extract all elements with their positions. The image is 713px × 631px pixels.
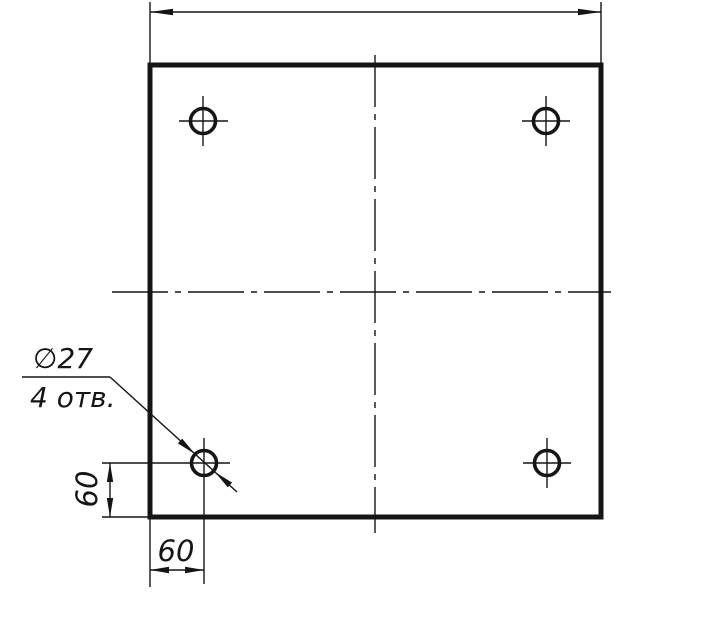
hole-bottom-right xyxy=(523,438,571,488)
arrowhead-down-icon xyxy=(107,498,113,517)
diameter-arrowhead-upper-icon xyxy=(178,439,195,454)
hole-diameter-label: ∅27 xyxy=(33,342,93,375)
hole-top-left xyxy=(179,96,228,146)
horizontal-offset-value-label: 60 xyxy=(158,534,195,568)
drawing-svg: ∅27 4 отв. 60 60 xyxy=(0,0,713,631)
arrowhead-right-icon xyxy=(578,9,601,15)
hole-diameter-callout: ∅27 4 отв. xyxy=(22,342,237,492)
arrowhead-up-icon xyxy=(107,463,113,482)
diameter-arrowhead-lower-icon xyxy=(215,472,232,487)
arrowhead-left-icon xyxy=(150,9,173,15)
hole-top-right xyxy=(522,96,570,146)
vertical-offset-value-label: 60 xyxy=(70,471,104,508)
dimension-hole-offset-vertical: 60 xyxy=(70,463,150,517)
hole-count-label: 4 отв. xyxy=(30,381,116,414)
drawing-canvas: ∅27 4 отв. 60 60 xyxy=(0,0,713,631)
dimension-hole-offset-horizontal: 60 xyxy=(150,519,204,587)
dimension-overall-width xyxy=(150,2,601,63)
